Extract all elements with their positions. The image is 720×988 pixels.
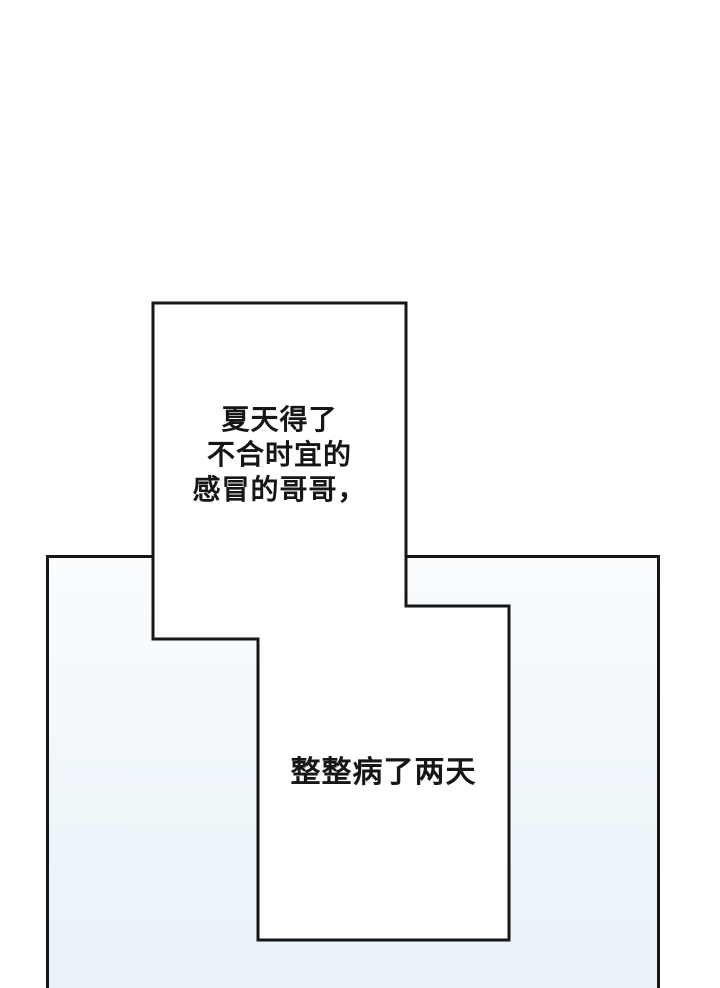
speech-line: 整整病了两天	[291, 754, 477, 792]
speech-text-bottom: 整整病了两天	[258, 606, 509, 940]
speech-line: 夏天得了	[221, 402, 337, 437]
speech-line: 不合时宜的	[207, 437, 352, 472]
speech-text-top: 夏天得了 不合时宜的 感冒的哥哥，	[153, 303, 406, 639]
speech-line: 感冒的哥哥，	[192, 472, 366, 507]
comic-page: { "page": { "type": "comic-page", "backg…	[0, 0, 720, 977]
